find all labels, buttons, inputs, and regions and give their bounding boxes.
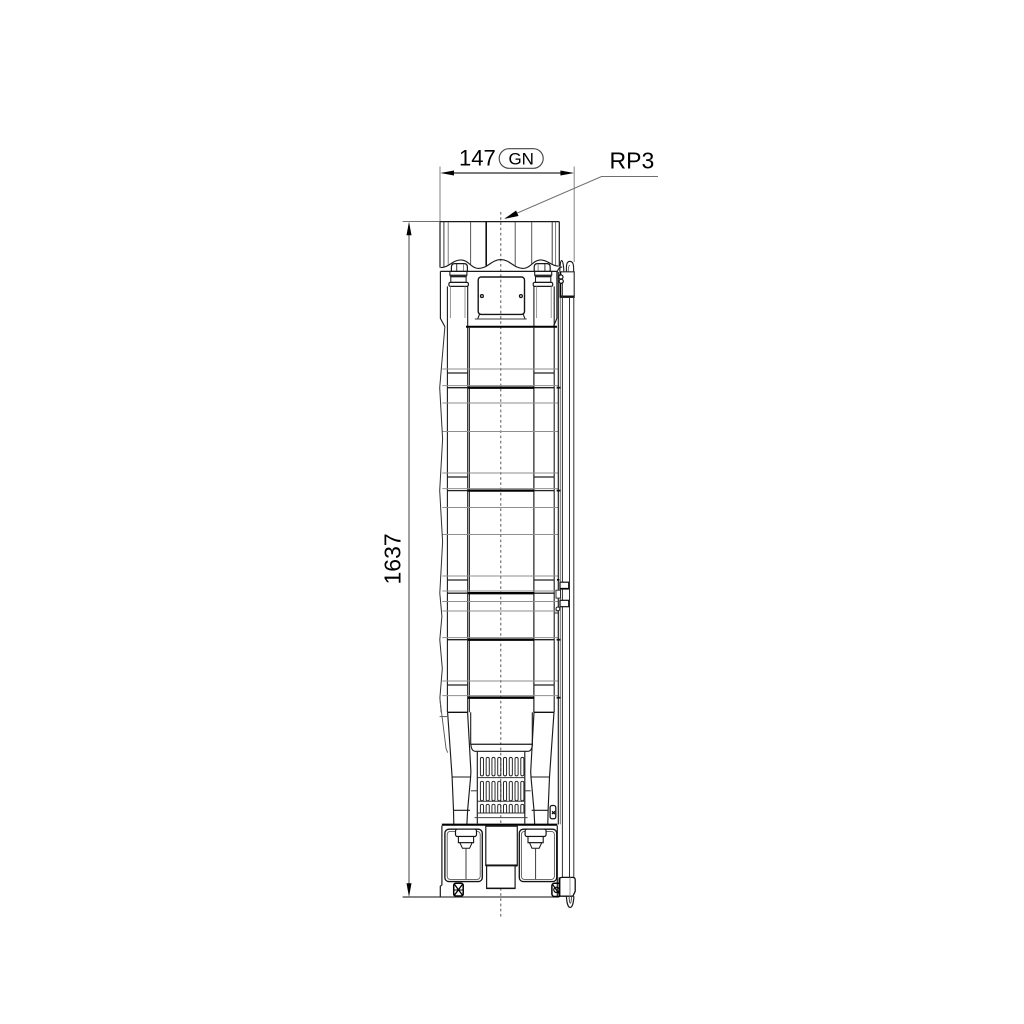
svg-text:RP3: RP3 — [610, 148, 655, 174]
svg-text:147: 147 — [459, 146, 496, 171]
svg-text:1637: 1637 — [380, 533, 406, 584]
svg-text:GN: GN — [508, 149, 534, 168]
